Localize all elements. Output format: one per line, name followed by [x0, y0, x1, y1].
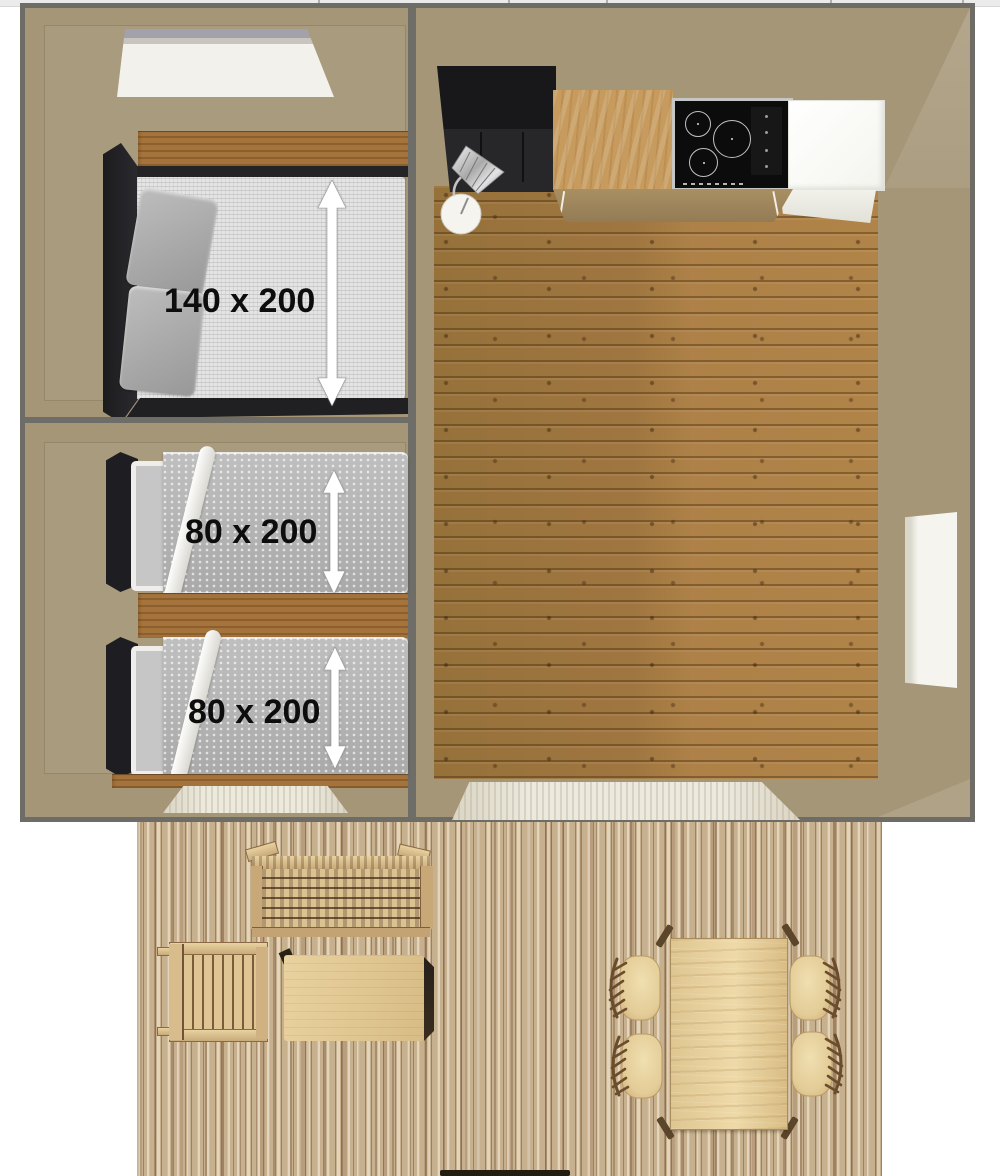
slatted-bench: [262, 869, 420, 927]
hob-control-strip: [683, 183, 745, 185]
single-bed-bottom-dimension-label: 80 x 200: [188, 693, 320, 732]
dimension-arrow-icon: [317, 180, 347, 406]
hob-burner-icon: [689, 148, 718, 177]
dining-chair: [608, 950, 662, 1026]
hob-control-panel: [751, 107, 782, 175]
dining-chair: [610, 1028, 664, 1104]
dining-chair: [790, 1026, 844, 1102]
patio-door-threshold: [452, 782, 800, 820]
hob-control-dot: [765, 115, 768, 118]
bench-side-rail: [420, 866, 433, 929]
floor-lamp: [432, 140, 510, 240]
armchair-back-rail: [169, 944, 184, 1040]
skylight-window: [117, 29, 334, 97]
bedroom-door-threshold: [163, 786, 348, 813]
double-bed-rail: [137, 166, 408, 177]
slatted-armchair: [184, 955, 256, 1029]
bench-front-rail: [252, 927, 430, 937]
hob-burner-icon: [713, 120, 751, 158]
hob-burner-icon: [685, 111, 711, 137]
side-window: [905, 512, 957, 688]
cabinet-seam: [522, 132, 524, 182]
wood-strip-foot: [112, 774, 408, 788]
coffee-table-shadow: [424, 957, 434, 1041]
armchair-front-rail: [256, 947, 268, 1039]
white-cabinet: [788, 100, 885, 191]
dining-chair: [788, 950, 842, 1026]
deck-step-shadow: [440, 1170, 570, 1176]
dining-table: [670, 938, 788, 1130]
dimension-arrow-icon: [322, 470, 346, 594]
floor-plan-canvas: 140 x 200 80 x 200 80 x 200: [0, 0, 1000, 1176]
dimension-arrow-icon: [323, 647, 347, 769]
wood-strip-between-beds: [138, 593, 408, 638]
hob-control-dot: [765, 149, 768, 152]
hob-control-dot: [765, 165, 768, 168]
bedroom-divider-wall: [25, 417, 408, 423]
wood-plank-floor: [434, 186, 878, 779]
wood-strip-headboard: [138, 131, 408, 171]
single-bed-top-dimension-label: 80 x 200: [185, 513, 317, 552]
induction-hob: [672, 98, 793, 191]
kitchen-counter: [553, 90, 673, 190]
coffee-table: [284, 955, 424, 1041]
hob-control-dot: [765, 131, 768, 134]
room-divider-wall: [408, 8, 416, 817]
counter-front-panel: [553, 189, 793, 222]
double-bed-dimension-label: 140 x 200: [164, 282, 315, 321]
